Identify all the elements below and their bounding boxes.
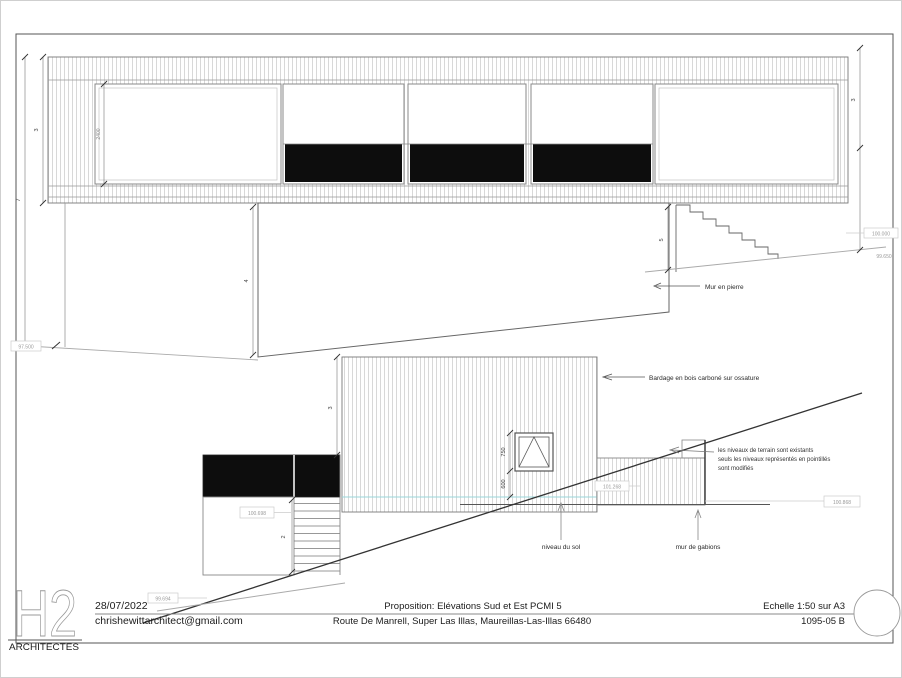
east-building-body bbox=[342, 357, 597, 512]
dim-upper-stairs-height: 5 bbox=[659, 238, 665, 241]
dim-lower-sill-height: 600 bbox=[501, 479, 507, 488]
annex-dark-band bbox=[203, 455, 340, 497]
dark-glazing-band-2 bbox=[410, 144, 524, 182]
cladding-label: Bardage en bois carboné sur ossature bbox=[649, 375, 760, 382]
dim-lower-volume-height: 3 bbox=[328, 406, 334, 409]
ground-level-label: niveau du sol bbox=[542, 544, 581, 551]
levels-note-line3: sont modifiés bbox=[718, 466, 753, 472]
spot-level-annex: 100.698 bbox=[248, 511, 266, 517]
dark-glazing-band-3 bbox=[533, 144, 651, 182]
firm-name: ARCHITECTES bbox=[9, 642, 79, 652]
elevation-drawing-canvas: 3 7 2400 3 4 5 3 2 750 600 97.500 100.00… bbox=[0, 0, 902, 678]
spot-level-gabion-right: 100.868 bbox=[833, 500, 851, 506]
dim-upper-inner-height: 3 bbox=[34, 128, 40, 131]
title-block-drawing-number: 1095-05 B bbox=[801, 616, 845, 627]
dim-upper-total-height: 7 bbox=[16, 198, 22, 201]
spot-level-volume-right: 101.268 bbox=[603, 485, 621, 491]
gabion-wall-label: mur de gabions bbox=[676, 544, 722, 551]
spot-level-upper-right-bottom: 99.650 bbox=[876, 254, 892, 260]
firm-logo: H2 ARCHITECTES bbox=[8, 576, 82, 652]
stamp-circle bbox=[854, 590, 900, 636]
logo-h2: H2 bbox=[13, 576, 77, 650]
title-block-scale: Echelle 1:50 sur A3 bbox=[763, 601, 845, 612]
stone-wall-label: Mur en pierre bbox=[705, 284, 744, 291]
south-window-right bbox=[655, 84, 838, 184]
levels-note-line2: seuls les niveaux représentés en pointil… bbox=[718, 457, 830, 463]
dim-upper-right-height: 3 bbox=[851, 98, 857, 101]
dark-glazing-band-1 bbox=[285, 144, 402, 182]
dim-window-2400: 2400 bbox=[96, 128, 102, 139]
levels-note-line1: les niveaux de terrain sont existants bbox=[718, 448, 813, 454]
title-block-address: Route De Manrell, Super Las Illas, Maure… bbox=[333, 616, 591, 627]
spot-level-upper-right-top: 100.000 bbox=[872, 232, 890, 238]
title-block-project-title: Proposition: Elévations Sud et Est PCMI … bbox=[384, 601, 561, 612]
drawing-sheet: 3 7 2400 3 4 5 3 2 750 600 97.500 100.00… bbox=[0, 0, 902, 678]
spot-level-bottom-left: 99.694 bbox=[155, 597, 171, 603]
spot-level-upper-left: 97.500 bbox=[18, 345, 34, 351]
dim-stone-wall-height: 4 bbox=[244, 279, 250, 282]
title-block-email: chrishewittarchitect@gmail.com bbox=[95, 615, 243, 627]
east-window bbox=[515, 433, 553, 471]
south-window-left bbox=[95, 84, 281, 184]
dim-annex-stairs-height: 2 bbox=[281, 535, 287, 538]
dim-lower-window-height: 750 bbox=[501, 447, 507, 456]
south-glazing-middle bbox=[283, 84, 653, 184]
title-block-date: 28/07/2022 bbox=[95, 600, 148, 612]
